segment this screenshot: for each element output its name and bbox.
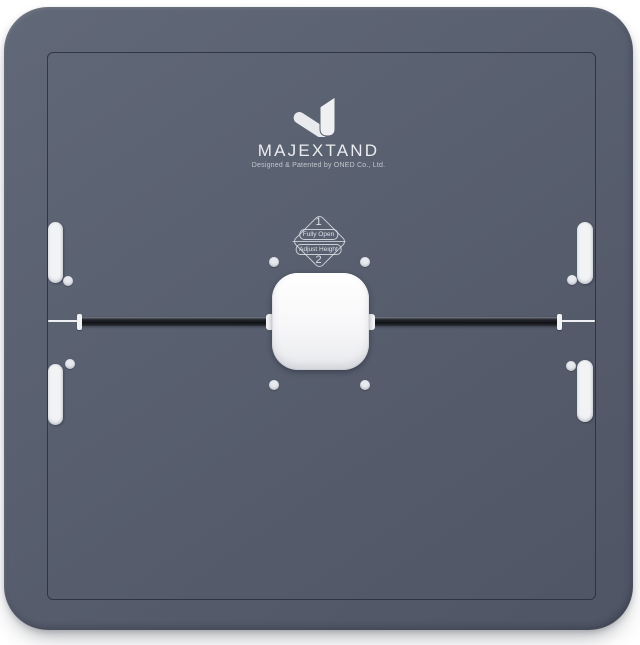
rivet-dot-side-left-top [63, 276, 73, 286]
slot-hairline-right [561, 320, 595, 322]
badge-step-1-number: 1 [315, 217, 321, 228]
badge-step-1-label: Fully Open [299, 229, 338, 240]
badge-divider [292, 241, 345, 242]
rivet-dot-center-top-left [269, 257, 279, 267]
center-hinge-plate [272, 273, 369, 370]
rivet-dot-center-top-right [360, 257, 370, 267]
brand-name: MAJEXTAND [4, 141, 633, 161]
rivet-dot-side-left-bottom [65, 359, 75, 369]
product-photo: MAJEXTAND Designed & Patented by ONED Co… [0, 0, 640, 645]
badge-step-2-number: 2 [315, 255, 321, 266]
rivet-dot-side-right-bottom [566, 361, 576, 371]
rivet-dot-center-bottom-left [269, 380, 279, 390]
hinge-slot-left-bottom [48, 364, 63, 425]
hinge-slot-left-top [48, 222, 63, 283]
hinge-slot-right-top [577, 222, 593, 284]
hinge-slot-right-bottom [577, 360, 593, 422]
slot-end-cap-right [557, 314, 562, 330]
slot-end-cap-left [77, 314, 82, 330]
majextand-logo-icon [293, 95, 337, 137]
rivet-dot-center-bottom-right [360, 380, 370, 390]
fold-slot-left [81, 317, 270, 326]
rivet-dot-side-right-top [567, 275, 577, 285]
majextand-stand-plate: MAJEXTAND Designed & Patented by ONED Co… [4, 7, 633, 630]
brand-tagline: Designed & Patented by ONED Co., Ltd. [4, 162, 633, 169]
fold-slot-right [371, 317, 558, 326]
